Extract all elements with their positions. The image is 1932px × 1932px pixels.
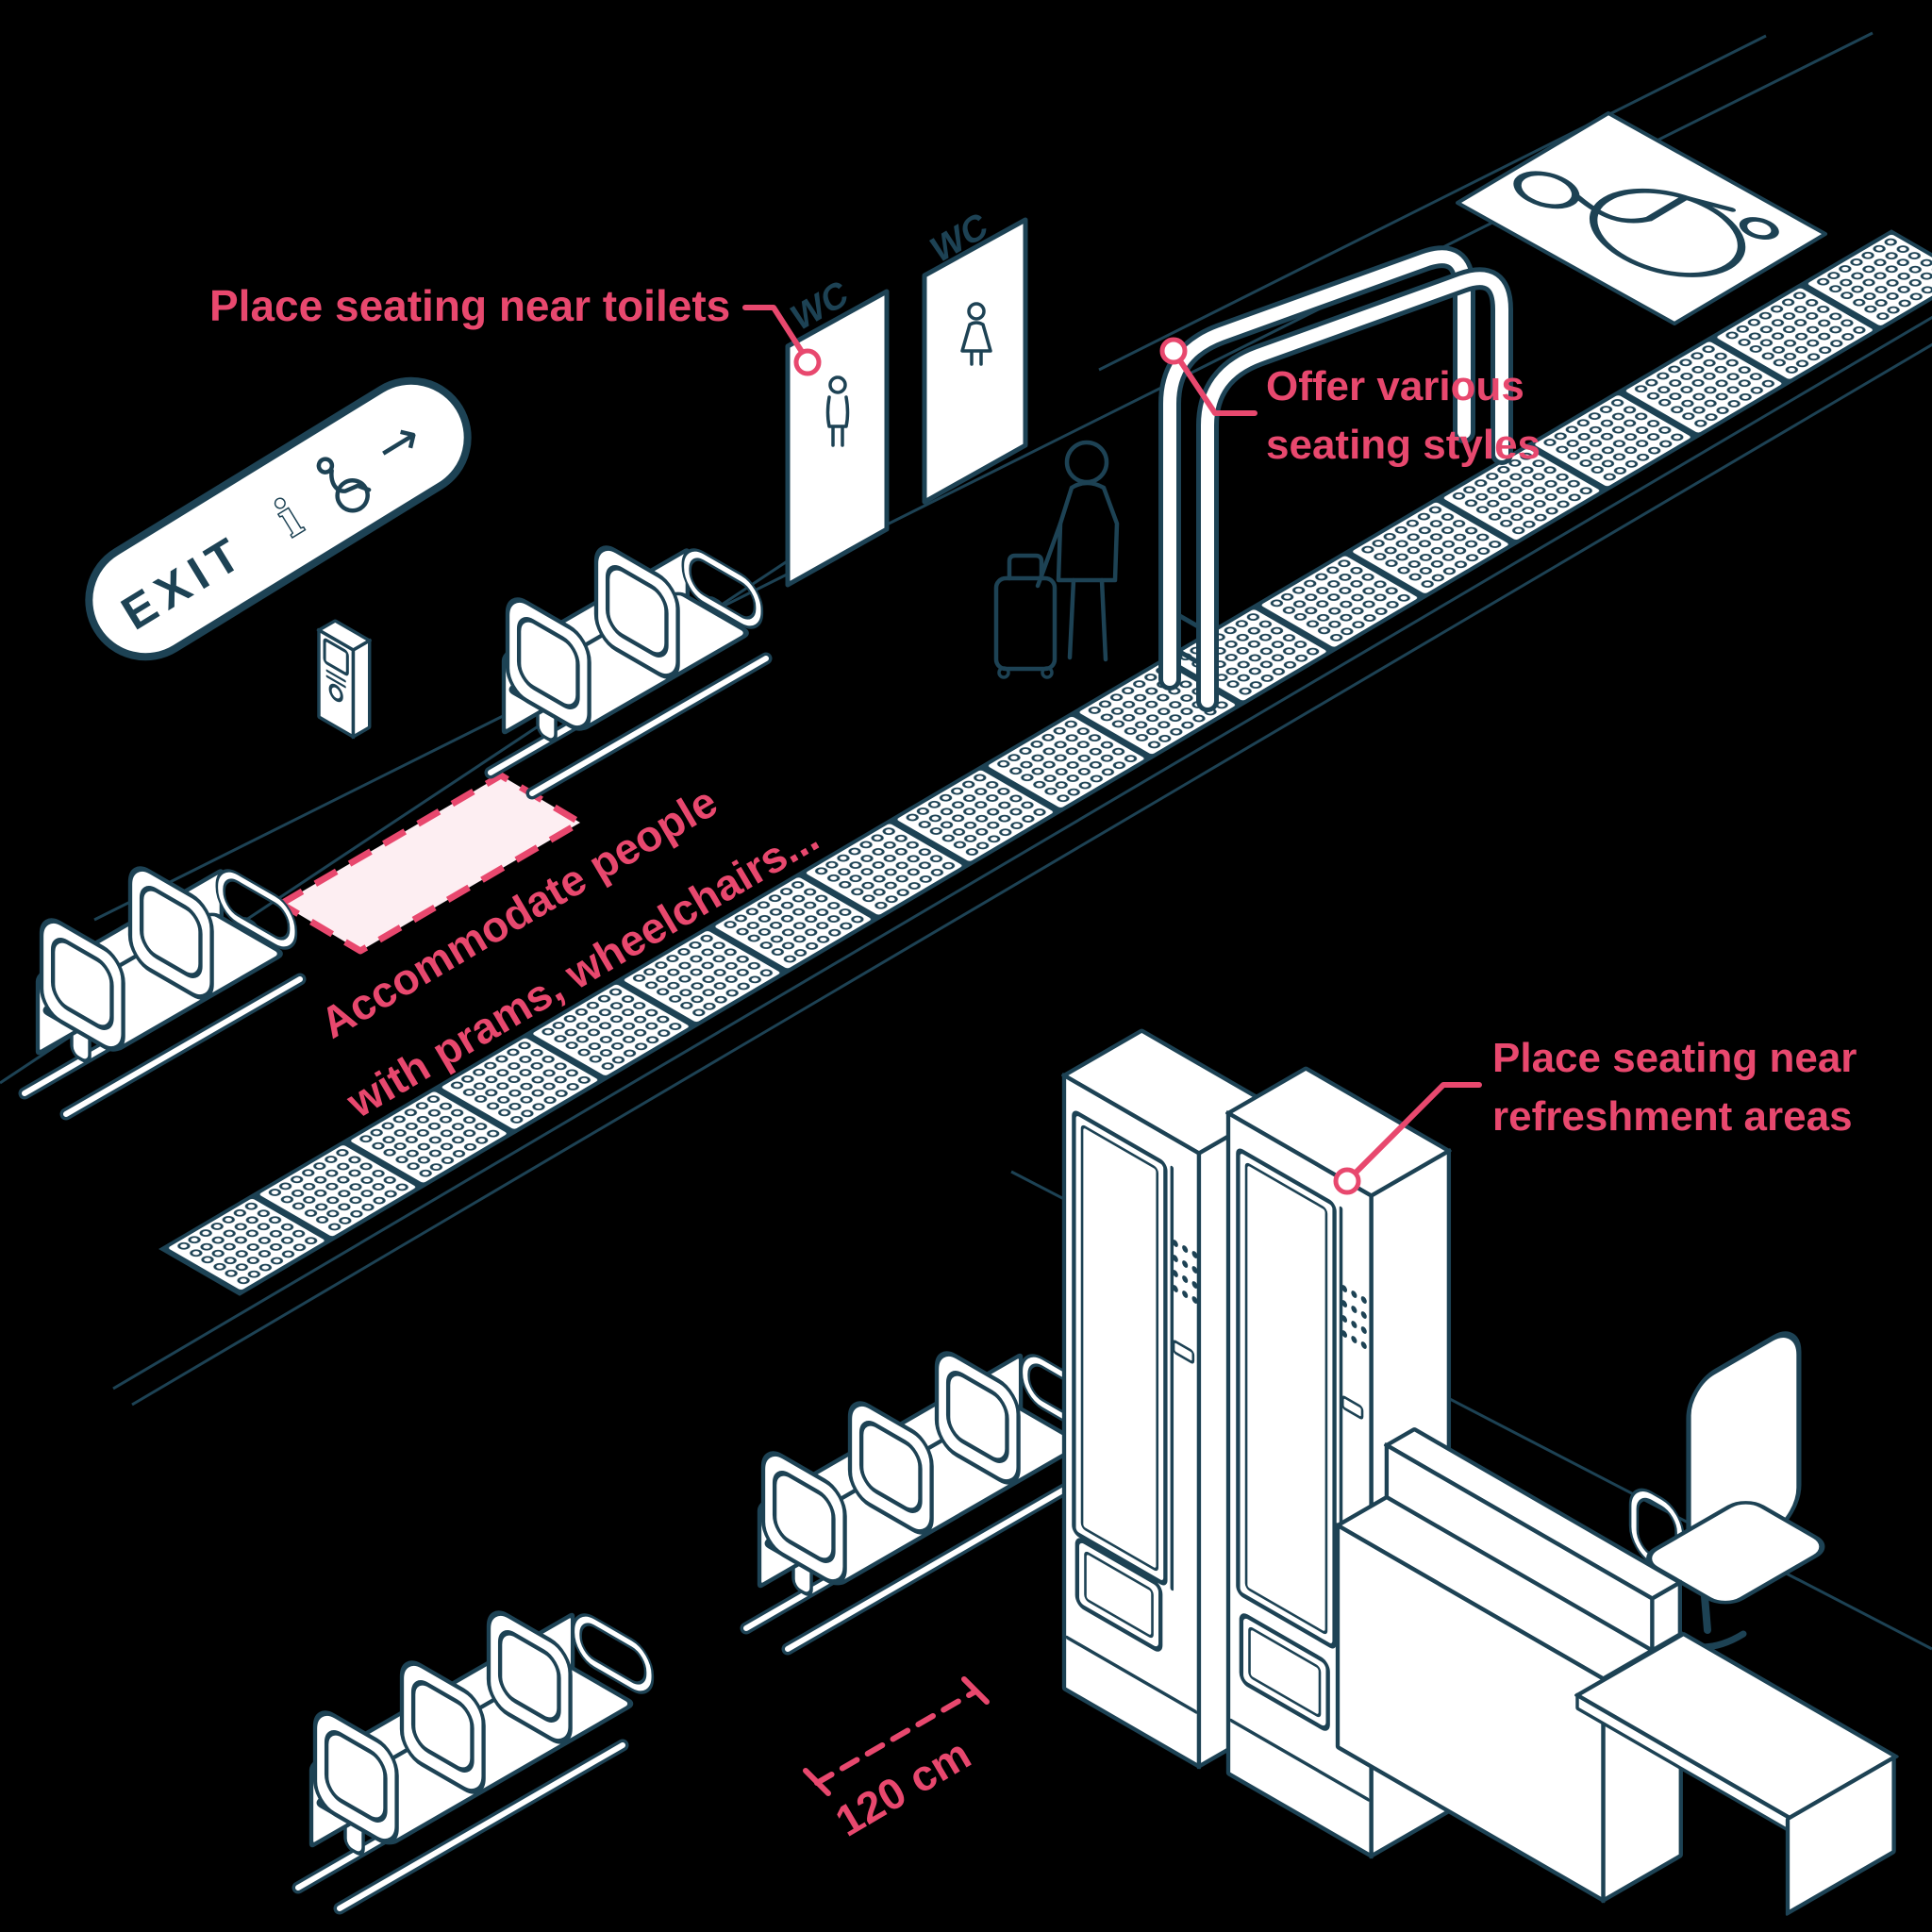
label-seating-styles-2: seating styles [1266, 422, 1541, 468]
ticket-validator [319, 621, 370, 737]
label-refreshment-1: Place seating near [1492, 1035, 1857, 1081]
leader-dot [1162, 340, 1185, 362]
wc-door-men: WC [787, 272, 887, 585]
label-toilets: Place seating near toilets [209, 281, 730, 330]
leader-dot [796, 351, 819, 374]
label-seating-styles-1: Offer various [1266, 363, 1524, 409]
label-refreshment-2: refreshment areas [1492, 1093, 1853, 1140]
station-accessibility-illustration: WC WC EXIT i → [0, 0, 1932, 1932]
